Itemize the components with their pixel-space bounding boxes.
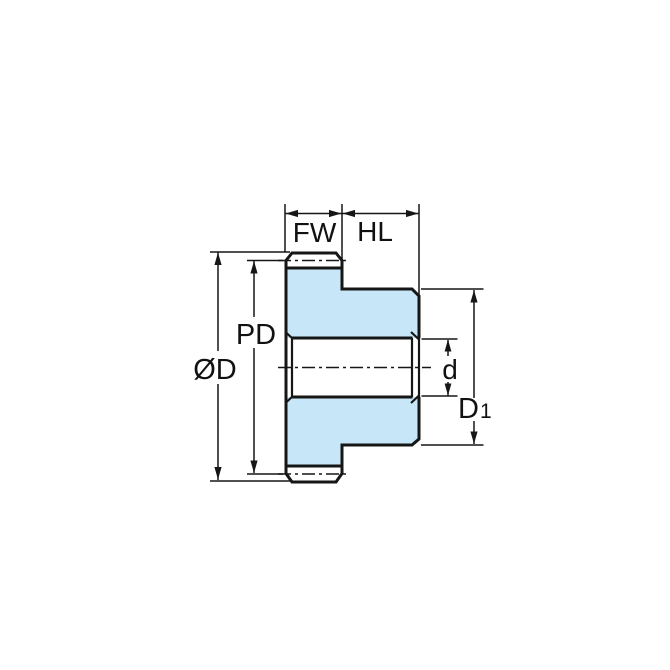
dim-hub-length: HL bbox=[342, 210, 419, 247]
gear-body-lower-section bbox=[286, 397, 419, 466]
arrowhead-d-up bbox=[445, 340, 452, 352]
diagram-canvas: FW HL ØD PD d D 1 bbox=[0, 0, 670, 670]
dim-hub-diameter: D 1 bbox=[458, 290, 492, 444]
label-face-width: FW bbox=[293, 217, 337, 248]
arrowhead-pd-down bbox=[250, 461, 257, 474]
label-pitch-diameter: PD bbox=[236, 319, 276, 351]
gear-body-upper-section bbox=[286, 268, 419, 338]
gear-dimension-diagram: FW HL ØD PD d D 1 bbox=[0, 0, 670, 670]
arrowhead-hl-right bbox=[406, 210, 419, 217]
dim-face-width: FW bbox=[285, 210, 342, 248]
label-hub-diameter-subscript: 1 bbox=[480, 400, 492, 423]
label-hub-diameter: D bbox=[458, 393, 479, 425]
label-bore-diameter: d bbox=[442, 354, 458, 385]
arrowhead-d1-up bbox=[470, 290, 477, 302]
label-outside-diameter: ØD bbox=[193, 354, 237, 386]
arrowhead-d-down bbox=[445, 384, 452, 396]
arrowhead-od-down bbox=[214, 467, 221, 480]
arrowhead-hl-left bbox=[343, 210, 356, 217]
arrowhead-od-up bbox=[214, 253, 221, 266]
dim-bore-diameter: d bbox=[442, 340, 458, 396]
dim-outside-diameter: ØD bbox=[193, 252, 237, 480]
dim-pitch-diameter: PD bbox=[236, 261, 276, 474]
label-hub-length: HL bbox=[357, 216, 393, 247]
arrowhead-pd-up bbox=[250, 261, 257, 274]
arrowhead-d1-down bbox=[470, 432, 477, 444]
